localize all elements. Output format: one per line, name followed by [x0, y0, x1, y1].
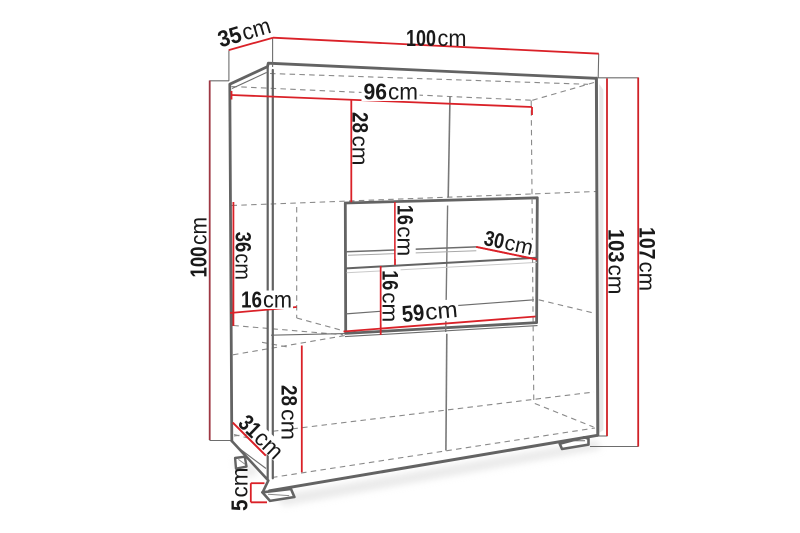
svg-text:cm: cm	[347, 136, 372, 166]
svg-text:16: 16	[393, 205, 418, 225]
svg-text:cm: cm	[604, 265, 629, 295]
svg-text:cm: cm	[378, 292, 403, 322]
svg-text:96: 96	[364, 79, 388, 105]
svg-text:cm: cm	[388, 79, 418, 105]
svg-text:16: 16	[241, 287, 262, 313]
svg-text:59: 59	[401, 299, 426, 327]
svg-text:103: 103	[604, 229, 629, 263]
svg-text:cm: cm	[227, 468, 253, 498]
svg-text:cm: cm	[393, 226, 418, 256]
svg-text:cm: cm	[438, 25, 467, 51]
svg-text:107: 107	[635, 227, 660, 260]
svg-text:cm: cm	[424, 296, 459, 325]
svg-text:100: 100	[185, 247, 211, 278]
svg-text:28: 28	[347, 112, 372, 133]
svg-text:cm: cm	[635, 262, 660, 292]
svg-text:36: 36	[230, 232, 255, 253]
svg-text:cm: cm	[263, 287, 292, 313]
svg-text:cm: cm	[185, 217, 211, 245]
svg-text:100: 100	[406, 25, 436, 51]
svg-text:16: 16	[378, 270, 403, 290]
svg-text:28: 28	[276, 385, 301, 406]
svg-text:cm: cm	[230, 253, 255, 280]
svg-text:cm: cm	[276, 409, 301, 440]
svg-text:5: 5	[227, 500, 253, 512]
